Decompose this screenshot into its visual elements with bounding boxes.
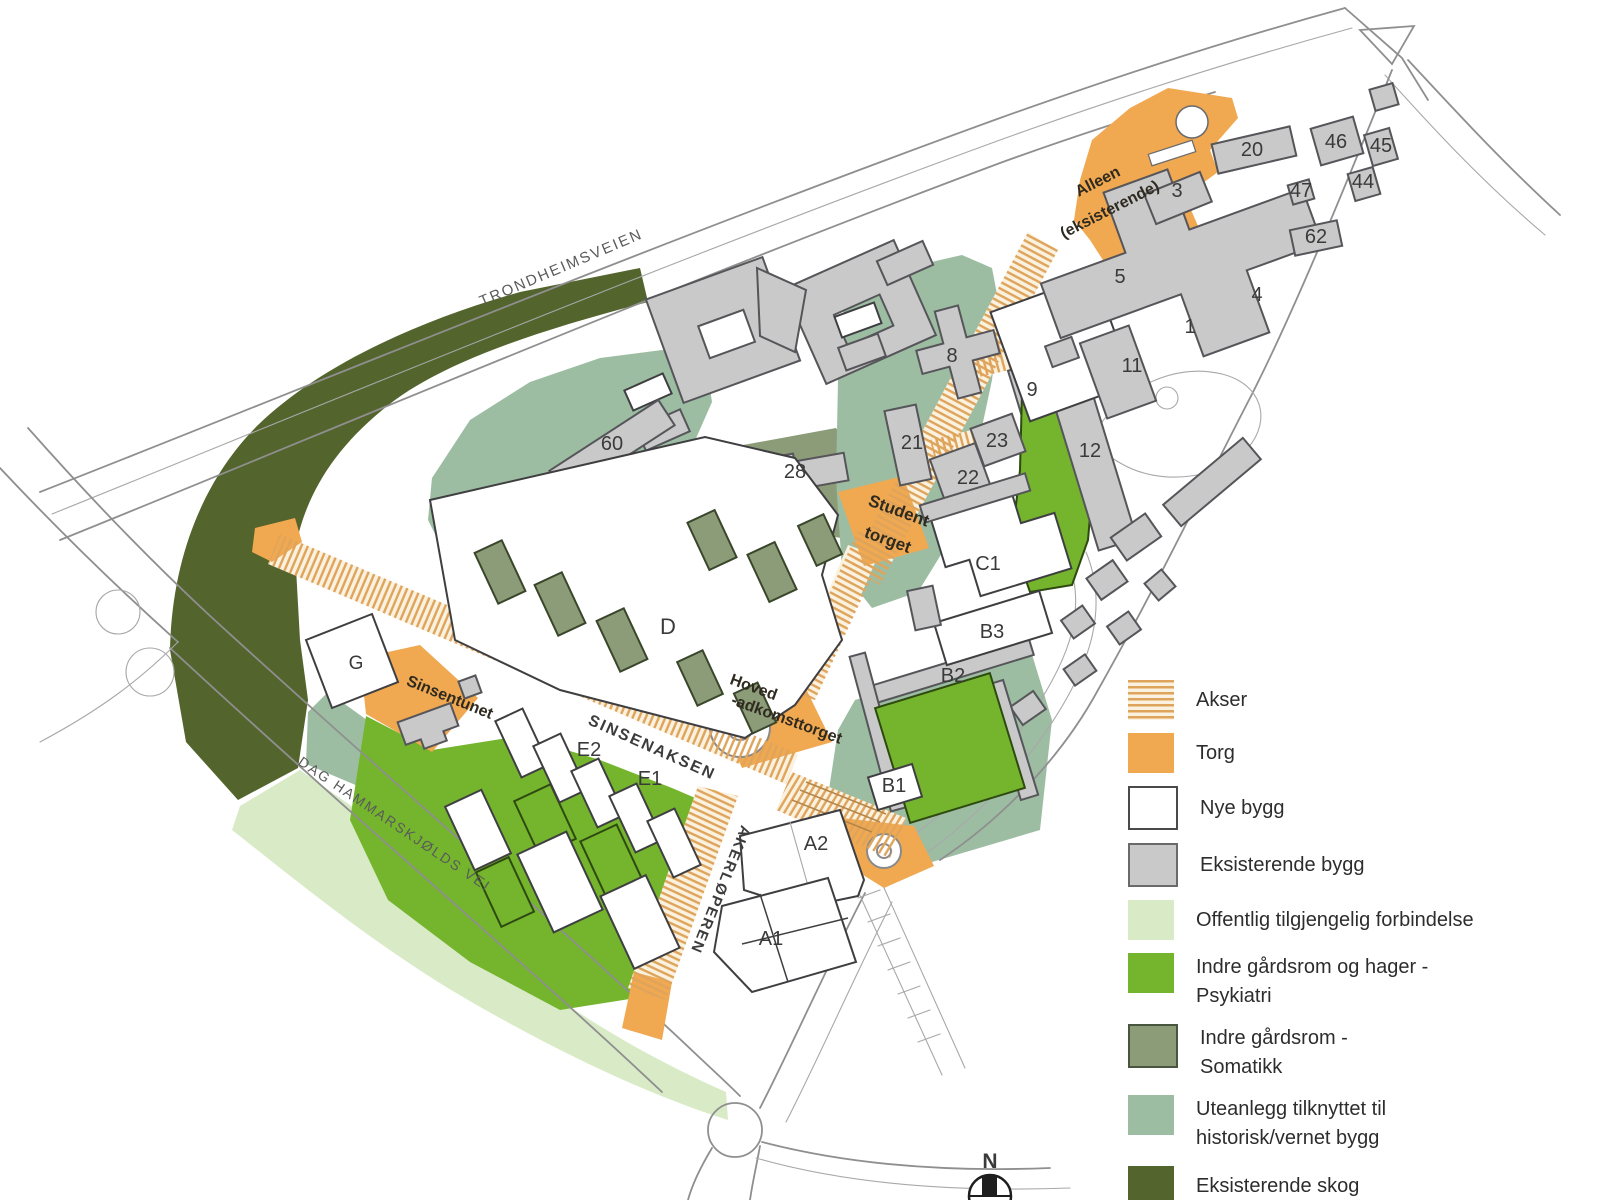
legend-swatch-offentlig-icon <box>1128 900 1174 940</box>
map-label-b9: 9 <box>1026 379 1037 401</box>
map-label-b11: 11 <box>1122 355 1143 377</box>
map-label-b44: 44 <box>1352 171 1374 193</box>
map-label-b12: 12 <box>1079 440 1101 462</box>
legend-item-uteanlegg: Uteanlegg tilknyttet tilhistorisk/vernet… <box>1128 1095 1588 1153</box>
legend: AkserTorgNye byggEksisterende byggOffent… <box>1128 680 1588 1200</box>
map-label-b1: 1 <box>1184 316 1195 338</box>
map-label-b21: 21 <box>901 432 923 454</box>
legend-swatch-somatikk-icon <box>1128 1024 1178 1068</box>
legend-label-akser: Akser <box>1196 686 1247 715</box>
map-label-b45: 45 <box>1370 135 1392 157</box>
legend-swatch-torg-icon <box>1128 733 1174 773</box>
map-label-b5: 5 <box>1114 266 1125 288</box>
map-label-bC1: C1 <box>975 553 1001 575</box>
map-label-bA2: A2 <box>804 833 828 855</box>
site-plan-page: TRONDHEIMSVEIENDAG HAMMARSKJØLDS VEISINS… <box>0 0 1600 1200</box>
legend-item-nye-bygg: Nye bygg <box>1128 786 1588 830</box>
north-label: N <box>982 1150 997 1173</box>
map-label-b62: 62 <box>1305 226 1327 248</box>
legend-label-nye-bygg: Nye bygg <box>1200 794 1285 823</box>
map-label-b4: 4 <box>1251 284 1262 306</box>
map-label-bE2: E2 <box>577 739 601 761</box>
map-label-b8: 8 <box>946 345 957 367</box>
map-label-bG: G <box>349 653 364 674</box>
legend-label-skog: Eksisterende skog <box>1196 1172 1359 1200</box>
legend-item-akser: Akser <box>1128 680 1588 720</box>
legend-label-offentlig: Offentlig tilgjengelig forbindelse <box>1196 906 1474 935</box>
north-arrow: N <box>969 1150 1011 1200</box>
legend-swatch-psykiatri-icon <box>1128 953 1174 993</box>
legend-item-torg: Torg <box>1128 733 1588 773</box>
legend-label-eksisterende-bygg: Eksisterende bygg <box>1200 851 1365 880</box>
map-label-b60: 60 <box>601 433 623 455</box>
map-label-b47: 47 <box>1290 180 1312 202</box>
legend-item-eksisterende-bygg: Eksisterende bygg <box>1128 843 1588 887</box>
legend-item-skog: Eksisterende skog <box>1128 1166 1588 1200</box>
map-label-bE1: E1 <box>638 768 662 790</box>
legend-item-psykiatri: Indre gårdsrom og hager -Psykiatri <box>1128 953 1588 1011</box>
map-label-b23: 23 <box>986 430 1008 452</box>
legend-label-torg: Torg <box>1196 739 1235 768</box>
map-label-bA1: A1 <box>759 928 783 950</box>
map-label-bB2: B2 <box>941 665 965 687</box>
map-label-b22: 22 <box>957 467 979 489</box>
legend-item-somatikk: Indre gårdsrom -Somatikk <box>1128 1024 1588 1082</box>
map-label-b3: 3 <box>1171 180 1182 202</box>
map-label-bD: D <box>660 614 676 639</box>
legend-swatch-skog-icon <box>1128 1166 1174 1200</box>
legend-swatch-nye-bygg-icon <box>1128 786 1178 830</box>
legend-label-somatikk: Indre gårdsrom -Somatikk <box>1200 1024 1348 1082</box>
alleen-circle <box>1176 106 1208 138</box>
legend-swatch-uteanlegg-icon <box>1128 1095 1174 1135</box>
legend-label-psykiatri: Indre gårdsrom og hager -Psykiatri <box>1196 953 1428 1011</box>
map-label-b46: 46 <box>1325 131 1347 153</box>
map-label-b28: 28 <box>784 461 806 483</box>
map-label-bB3: B3 <box>980 621 1004 643</box>
legend-swatch-akser-icon <box>1128 680 1174 720</box>
legend-item-offentlig: Offentlig tilgjengelig forbindelse <box>1128 900 1588 940</box>
legend-label-uteanlegg: Uteanlegg tilknyttet tilhistorisk/vernet… <box>1196 1095 1386 1153</box>
map-label-b20: 20 <box>1241 139 1263 161</box>
legend-swatch-eksisterende-bygg-icon <box>1128 843 1178 887</box>
map-label-bB1: B1 <box>882 775 906 797</box>
